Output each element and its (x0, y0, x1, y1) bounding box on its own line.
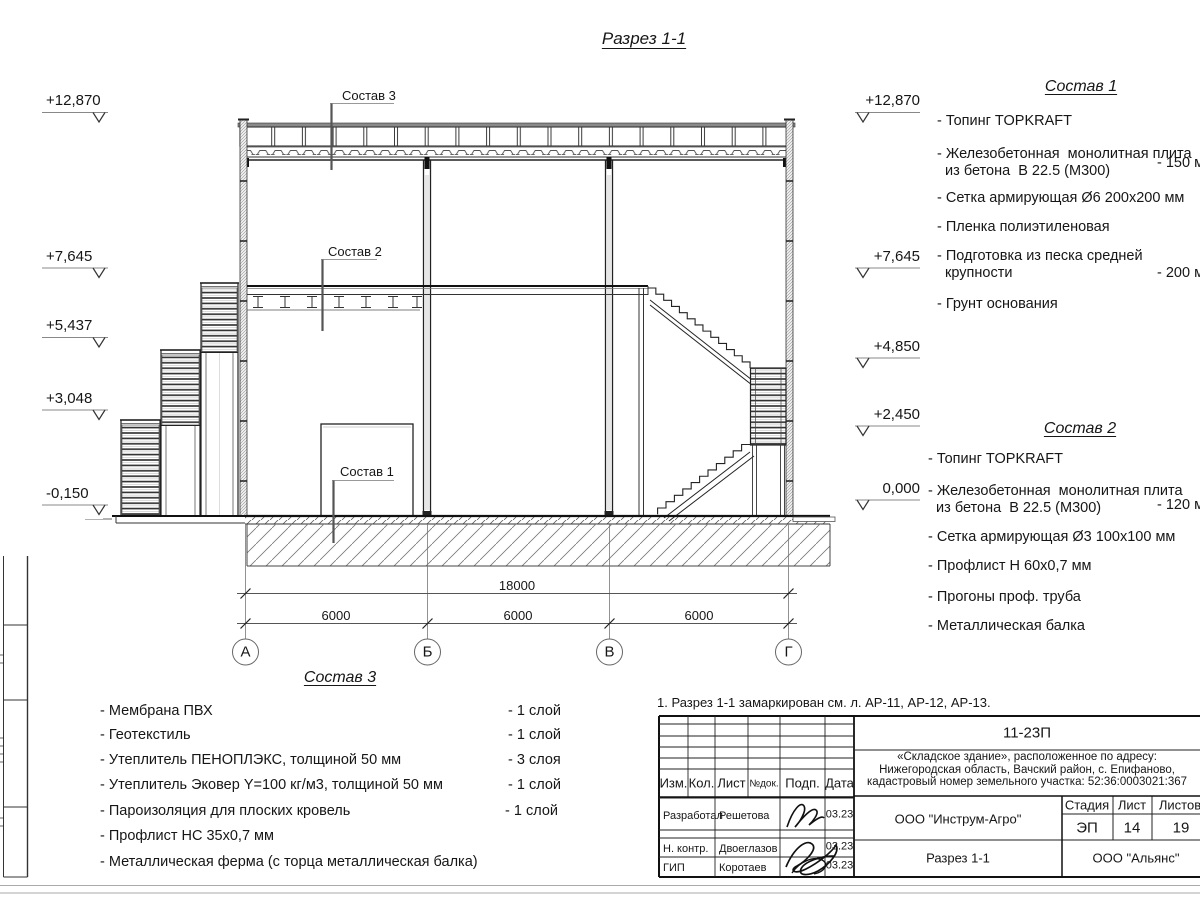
foundation (85, 516, 835, 566)
sostav3-item-2: - Утеплитель ПЕНОПЛЭКС, толщиной 50 мм (100, 752, 401, 769)
titleblock-role-1: Н. контр. (663, 841, 708, 858)
titleblock-sheet: 14 (1124, 820, 1141, 837)
sostav2-value-1: - 120 мм (1157, 497, 1200, 514)
page-title: Разрез 1-1 (602, 30, 686, 47)
titleblock-header-list: Лист (717, 775, 745, 792)
elevation-left-2: +5,437 (46, 317, 92, 334)
titleblock-sheet-label: Лист (1118, 797, 1146, 814)
dimension-span-0: 6000 (322, 607, 351, 624)
titleblock-date-0: 03.23 (826, 807, 854, 824)
sostav3-item-0: - Мембрана ПВХ (100, 703, 213, 720)
titleblock-header-izm: Изм. (660, 775, 688, 792)
sostav3-value-2: - 3 слоя (508, 752, 561, 769)
dimension-span-2: 6000 (685, 607, 714, 624)
axis-label-0: А (240, 644, 250, 661)
titleblock-stage-label: Стадия (1065, 797, 1109, 814)
sostav1-item-3: - Пленка полиэтиленовая (937, 219, 1110, 236)
titleblock-name-2: Коротаев (719, 860, 767, 877)
elevation-right-3: +2,450 (770, 406, 920, 423)
staircase (639, 288, 786, 521)
sostav1-item-0: - Топинг TOPKRAFT (937, 113, 1072, 130)
titleblock-company: ООО "Альянс" (1093, 850, 1180, 867)
leader-label-sostav3: Состав 3 (342, 87, 396, 104)
titleblock-name-0: Решетова (719, 808, 769, 825)
sostav3-item-3: - Утеплитель Эковер Y=100 кг/м3, толщино… (100, 777, 443, 794)
titleblock-date-2: 03.23 (826, 858, 854, 875)
elevation-right-2: +4,850 (770, 338, 920, 355)
titleblock-object-line-0: «Складское здание», расположенное по адр… (897, 751, 1157, 764)
sostav3-value-4: - 1 слой (505, 803, 558, 820)
columns (423, 157, 614, 516)
axis-label-2: В (604, 644, 614, 661)
mezzanine-floor (247, 286, 648, 310)
titleblock-doc-number: 11-23П (1003, 725, 1051, 742)
sostav3-value-1: - 1 слой (508, 727, 561, 744)
titleblock-header-kol: Кол. (689, 775, 715, 792)
sostav1-title: Состав 1 (1045, 78, 1117, 95)
titleblock-header-data: Дата (825, 775, 854, 792)
exterior-racks (120, 283, 239, 516)
dimension-span-1: 6000 (504, 607, 533, 624)
sostav1-item-2: - Сетка армирующая Ø6 200x200 мм (937, 190, 1184, 207)
elevation-left-1: +7,645 (46, 248, 92, 265)
titleblock-stage: ЭП (1076, 820, 1098, 837)
leader-label-sostav2: Состав 2 (328, 243, 382, 260)
titleblock-name-1: Двоеглазов (719, 841, 777, 858)
sostav2-item-4: - Прогоны проф. труба (928, 589, 1081, 606)
elevation-symbols-left (42, 113, 108, 515)
sostav3-value-0: - 1 слой (508, 703, 561, 720)
sostav2-title: Состав 2 (1044, 420, 1116, 437)
titleblock-date-1: 03.23 (826, 839, 854, 856)
axis-label-1: Б (423, 644, 433, 661)
sostav3-item-6: - Металлическая ферма (с торца металличе… (100, 854, 478, 871)
elevation-left-4: -0,150 (46, 485, 89, 502)
sostav3-item-1: - Геотекстиль (100, 727, 191, 744)
titleblock-sheets-label: Листов (1159, 797, 1200, 814)
titleblock-header-ndok: №док. (749, 776, 778, 793)
sostav2-item-3: - Профлист Н 60x0,7 мм (928, 558, 1092, 575)
sostav1-item-4: - Подготовка из песка средней крупности (937, 248, 1143, 282)
drawing-note: 1. Разрез 1-1 замаркирован см. л. АР-11,… (657, 694, 991, 711)
elevation-left-0: +12,870 (46, 92, 101, 109)
sostav3-title: Состав 3 (304, 669, 376, 686)
elevation-symbols-right (855, 113, 920, 510)
sostav2-item-2: - Сетка армирующая Ø3 100x100 мм (928, 529, 1175, 546)
drawing-sheet: { "title": "Разрез 1-1", "note": "1. Раз… (0, 0, 1200, 900)
sostav1-item-5: - Грунт основания (937, 296, 1058, 313)
sostav1-value-4: - 200 мм (1157, 265, 1200, 282)
axis-label-3: Г (784, 644, 792, 661)
roof-truss (238, 123, 795, 167)
titleblock-role-0: Разработал (663, 808, 723, 825)
titleblock-object-line-1: Нижегородская область, Вачский район, с.… (879, 763, 1175, 776)
sostav3-value-3: - 1 слой (508, 777, 561, 794)
sostav2-item-5: - Металлическая балка (928, 618, 1085, 635)
titleblock-org: ООО "Инструм-Агро" (895, 811, 1022, 828)
sostav1-item-1: - Железобетонная монолитная плита из бет… (937, 146, 1192, 180)
leader-label-sostav1: Состав 1 (340, 463, 394, 480)
titleblock-drawing-name: Разрез 1-1 (926, 850, 990, 867)
titleblock-header-podp: Подп. (785, 775, 820, 792)
titleblock-role-2: ГИП (663, 860, 685, 877)
sostav3-item-4: - Пароизоляция для плоских кровель (100, 803, 350, 820)
elevation-right-1: +7,645 (770, 248, 920, 265)
sostav2-item-1: - Железобетонная монолитная плита из бет… (928, 483, 1183, 517)
sostav2-item-0: - Топинг TOPKRAFT (928, 451, 1063, 468)
sostav3-item-5: - Профлист НС 35х0,7 мм (100, 828, 274, 845)
elevation-left-3: +3,048 (46, 390, 92, 407)
elevation-right-4: 0,000 (770, 480, 920, 497)
sostav1-value-1: - 150 мм (1157, 155, 1200, 172)
titleblock-object-line-2: кадастровый номер земельного участка: 52… (867, 776, 1187, 789)
elevation-right-0: +12,870 (770, 92, 920, 109)
titleblock-sheets: 19 (1173, 820, 1190, 837)
dimension-total: 18000 (499, 577, 535, 594)
